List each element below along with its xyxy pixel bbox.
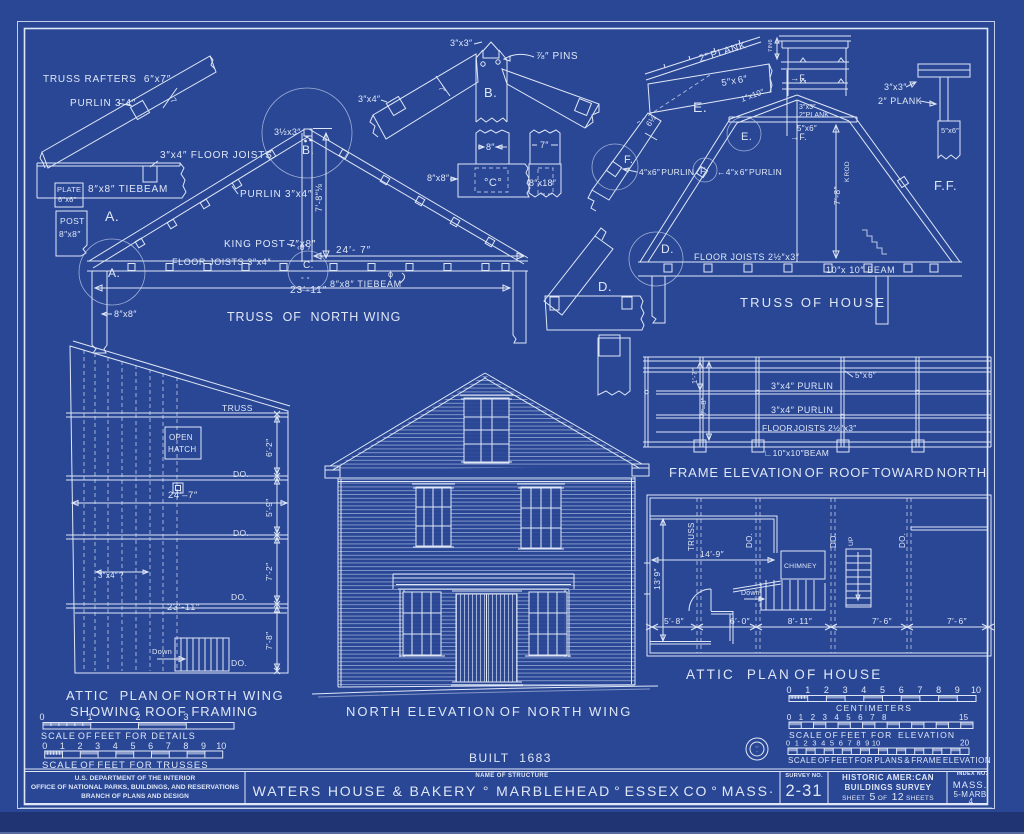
svg-text:WATERS HOUSE & BAKERY ° MARBLE: WATERS HOUSE & BAKERY ° MARBLEHEAD ° ESS… <box>253 783 776 799</box>
svg-text:3: 3 <box>812 739 816 748</box>
svg-text:4: 4 <box>113 741 118 751</box>
svg-text:7: 7 <box>870 713 875 722</box>
svg-text:° °: ° ° <box>301 276 310 284</box>
svg-text:0: 0 <box>39 712 44 722</box>
svg-text:2: 2 <box>135 712 140 722</box>
svg-text:°C°: °C° <box>484 177 502 189</box>
svg-text:7′-2″: 7′-2″ <box>264 563 274 581</box>
svg-text:5″x 6″: 5″x 6″ <box>855 371 876 380</box>
svg-text:7′-8″: 7′-8″ <box>832 186 842 205</box>
svg-text:6: 6 <box>858 713 863 722</box>
svg-text:‹8″›: ‹8″› <box>297 243 311 252</box>
svg-text:6: 6 <box>839 739 843 748</box>
svg-text:3: 3 <box>95 741 100 751</box>
svg-text:5: 5 <box>830 739 834 748</box>
svg-text:0: 0 <box>42 741 47 751</box>
svg-text:8: 8 <box>882 713 887 722</box>
svg-text:SHOWING ROOF FRAMING: SHOWING ROOF FRAMING <box>70 704 258 719</box>
svg-text:DO.: DO. <box>745 533 754 548</box>
svg-text:DO.: DO. <box>231 658 247 668</box>
svg-text:8″: 8″ <box>486 142 495 152</box>
svg-text:B.: B. <box>302 143 314 157</box>
svg-text:NORTH ELEVATION OF NORTH WING: NORTH ELEVATION OF NORTH WING <box>346 704 632 719</box>
svg-text:1′-7″: 1′-7″ <box>690 368 699 384</box>
svg-text:8″x8″: 8″x8″ <box>114 309 137 319</box>
svg-text:7″: 7″ <box>540 140 549 150</box>
svg-text:B.: B. <box>484 85 497 100</box>
svg-text:TRUSS RAFTERS 6″x7″: TRUSS RAFTERS 6″x7″ <box>43 74 171 85</box>
svg-text:TRUSS OF HOUSE: TRUSS OF HOUSE <box>740 295 886 310</box>
svg-text:3″x3″: 3″x3″ <box>884 82 907 92</box>
svg-text:5: 5 <box>130 741 135 751</box>
svg-text:2″PLANK: 2″PLANK <box>799 112 829 119</box>
svg-text:TRUSS: TRUSS <box>222 403 253 413</box>
svg-text:5′- 8″: 5′- 8″ <box>664 616 684 626</box>
svg-text:8″x8″ TIEBEAM: 8″x8″ TIEBEAM <box>330 279 402 289</box>
svg-text:CENTIMETERS: CENTIMETERS <box>836 703 912 713</box>
svg-text:6: 6 <box>148 741 153 751</box>
svg-text:E.: E. <box>741 131 752 143</box>
svg-text:F.: F. <box>624 154 633 166</box>
svg-text:ϕ: ϕ <box>388 269 393 279</box>
svg-text:OFFICE OF NATIONAL PARKS, BUIL: OFFICE OF NATIONAL PARKS, BUILDINGS, AND… <box>31 784 240 791</box>
svg-text:D.: D. <box>598 279 612 294</box>
svg-text:4: 4 <box>861 685 866 695</box>
svg-text:14′-9″: 14′-9″ <box>700 549 724 559</box>
svg-text:1: 1 <box>87 712 92 722</box>
svg-text:FLOOR JOISTS 2½″x3″: FLOOR JOISTS 2½″x3″ <box>762 423 857 433</box>
svg-text:INDEX NO.: INDEX NO. <box>957 771 988 777</box>
svg-text:0: 0 <box>786 685 791 695</box>
svg-text:2: 2 <box>824 685 829 695</box>
svg-text:1: 1 <box>805 685 810 695</box>
svg-text:1: 1 <box>795 739 799 748</box>
svg-text:8″x8″ TIEBEAM: 8″x8″ TIEBEAM <box>88 184 168 195</box>
svg-text:CHIMNEY: CHIMNEY <box>784 563 817 570</box>
svg-text:5″x6″: 5″x6″ <box>941 126 959 135</box>
svg-text:2-31: 2-31 <box>785 782 822 800</box>
svg-text:Down: Down <box>152 647 172 656</box>
svg-text:10″x 10″ BEAM: 10″x 10″ BEAM <box>826 265 895 275</box>
svg-text:10: 10 <box>971 685 981 695</box>
svg-text:3½x3″: 3½x3″ <box>274 127 301 137</box>
svg-text:C.: C. <box>303 260 314 271</box>
svg-text:K ROD: K ROD <box>844 161 851 182</box>
svg-text:3″x3″: 3″x3″ <box>799 104 816 111</box>
svg-text:DO.: DO. <box>233 528 249 538</box>
svg-text:8″x18″: 8″x18″ <box>529 178 557 188</box>
svg-text:7: 7 <box>848 739 852 748</box>
svg-text:∟10″x10″BEAM: ∟10″x10″BEAM <box>764 448 829 458</box>
svg-text:UP: UP <box>848 537 855 546</box>
svg-text:7′- 6″: 7′- 6″ <box>947 616 967 626</box>
svg-text:24′- 7″: 24′- 7″ <box>336 245 371 256</box>
svg-text:PURLIN 3″x4″: PURLIN 3″x4″ <box>240 189 312 200</box>
svg-text:FLOOR JOISTS 3″x4″: FLOOR JOISTS 3″x4″ <box>172 257 271 267</box>
svg-text:13′ 9″: 13′ 9″ <box>652 568 662 590</box>
svg-text:BUILDINGS SURVEY: BUILDINGS SURVEY <box>845 783 932 792</box>
svg-text:HATCH: HATCH <box>168 445 196 454</box>
svg-text:D.: D. <box>661 242 674 256</box>
svg-text:8: 8 <box>183 741 188 751</box>
svg-text:3: 3 <box>183 712 188 722</box>
svg-text:POST: POST <box>60 216 85 226</box>
svg-text:3″x4″ PURLIN: 3″x4″ PURLIN <box>771 405 833 415</box>
svg-text:BUILT 1683: BUILT 1683 <box>469 751 552 765</box>
svg-text:6′-2″: 6′-2″ <box>264 439 274 457</box>
svg-text:15: 15 <box>959 713 969 722</box>
svg-text:7′-8″: 7′-8″ <box>264 632 274 650</box>
svg-text:1: 1 <box>799 713 804 722</box>
svg-text:3″x4″: 3″x4″ <box>358 94 381 104</box>
svg-text:BRANCH OF PLANS AND DESIGN: BRANCH OF PLANS AND DESIGN <box>81 793 189 800</box>
svg-text:7: 7 <box>917 685 922 695</box>
svg-text:3″x4″ PURLIN: 3″x4″ PURLIN <box>771 381 833 391</box>
svg-text:4: 4 <box>834 713 839 722</box>
svg-text:DO.: DO. <box>233 469 249 479</box>
svg-text:3: 3 <box>843 685 848 695</box>
svg-text:TRUSS OF NORTH WING: TRUSS OF NORTH WING <box>227 310 401 324</box>
svg-text:→F.: →F. <box>790 132 807 142</box>
svg-text:7 IN 6: 7 IN 6 <box>768 39 774 52</box>
svg-text:0: 0 <box>787 713 792 722</box>
svg-text:DO.: DO. <box>829 533 838 548</box>
svg-text:5: 5 <box>846 713 851 722</box>
svg-text:PLATE: PLATE <box>57 185 81 194</box>
svg-text:A.: A. <box>105 208 119 224</box>
svg-text:4: 4 <box>821 739 825 748</box>
svg-text:F.F.: F.F. <box>934 178 957 193</box>
svg-text:2: 2 <box>804 739 808 748</box>
svg-text:A.: A. <box>108 266 120 280</box>
svg-text:4: 4 <box>969 797 974 806</box>
svg-text:2″ PLANK: 2″ PLANK <box>878 96 922 106</box>
svg-text:7: 7 <box>166 741 171 751</box>
svg-text:5′-9″: 5′-9″ <box>264 499 274 517</box>
svg-text:F.: F. <box>700 166 708 176</box>
svg-text:SURVEY NO.: SURVEY NO. <box>785 773 823 779</box>
svg-text:9: 9 <box>201 741 206 751</box>
svg-text:6: 6 <box>899 685 904 695</box>
svg-text:8″x8″: 8″x8″ <box>427 173 450 183</box>
svg-text:··: ·· <box>756 749 759 754</box>
svg-text:NAME OF STRUCTURE: NAME OF STRUCTURE <box>475 773 548 779</box>
svg-text:5: 5 <box>880 685 885 695</box>
svg-text:0: 0 <box>786 739 790 748</box>
svg-text:20: 20 <box>960 739 970 748</box>
svg-text:U.S. DEPARTMENT OF THE INTERIO: U.S. DEPARTMENT OF THE INTERIOR <box>75 775 196 782</box>
svg-text:8: 8 <box>856 739 860 748</box>
svg-text:TRUSS: TRUSS <box>687 522 696 551</box>
svg-text:6″x6″: 6″x6″ <box>58 195 77 204</box>
svg-text:8′- 11″: 8′- 11″ <box>788 616 813 626</box>
svg-text:3″x3″: 3″x3″ <box>450 38 473 48</box>
svg-text:Down: Down <box>741 590 760 597</box>
svg-text:9: 9 <box>865 739 869 748</box>
svg-text:6′- 0″: 6′- 0″ <box>730 616 750 626</box>
svg-text:SCALE OF FEET FOR PLANS & FRAM: SCALE OF FEET FOR PLANS & FRAME ELEVATIO… <box>788 756 991 765</box>
svg-text:⅞″ PINS: ⅞″ PINS <box>536 51 578 62</box>
svg-text:→F.: →F. <box>790 73 807 83</box>
svg-text:8: 8 <box>936 685 941 695</box>
svg-text:E.: E. <box>693 99 707 115</box>
svg-text:7′–8″: 7′–8″ <box>699 397 708 415</box>
svg-text:DO.: DO. <box>231 592 247 602</box>
svg-text:SCALE OF FEET FOR DETAILS: SCALE OF FEET FOR DETAILS <box>41 731 196 741</box>
svg-text:PURLIN 3”4″: PURLIN 3”4″ <box>70 98 136 109</box>
svg-text:2: 2 <box>811 713 816 722</box>
svg-text:DO.: DO. <box>898 533 907 548</box>
svg-text:ATTIC PLAN OF NORTH WING: ATTIC PLAN OF NORTH WING <box>66 688 284 703</box>
svg-text:OPEN: OPEN <box>169 433 193 442</box>
svg-text:3: 3 <box>822 713 827 722</box>
svg-text:8″x8″: 8″x8″ <box>59 229 81 239</box>
svg-text:ATTIC PLAN OF HOUSE: ATTIC PLAN OF HOUSE <box>686 667 882 682</box>
svg-text:1: 1 <box>60 741 65 751</box>
svg-text:10: 10 <box>872 739 880 748</box>
svg-text:23′-11″: 23′-11″ <box>167 602 200 613</box>
svg-text:7′- 6″: 7′- 6″ <box>872 616 892 626</box>
svg-text:HISTORIC AMER:CAN: HISTORIC AMER:CAN <box>842 773 934 782</box>
svg-text:2: 2 <box>77 741 82 751</box>
svg-text:←4″x 6″ PURLIN: ←4″x 6″ PURLIN <box>717 167 782 177</box>
svg-text:4″x6″ PURLIN: 4″x6″ PURLIN <box>639 167 694 177</box>
svg-text:9: 9 <box>955 685 960 695</box>
svg-text:10: 10 <box>216 741 226 751</box>
svg-text:FLOOR JOISTS 2½″x3″: FLOOR JOISTS 2½″x3″ <box>694 252 800 262</box>
svg-text:FRAME ELEVATION OF ROOF TOWARD: FRAME ELEVATION OF ROOF TOWARD NORTH <box>669 465 987 480</box>
svg-text:23′-11″: 23′-11″ <box>290 285 327 296</box>
svg-text:7′-8″⅛: 7′-8″⅛ <box>314 184 324 212</box>
